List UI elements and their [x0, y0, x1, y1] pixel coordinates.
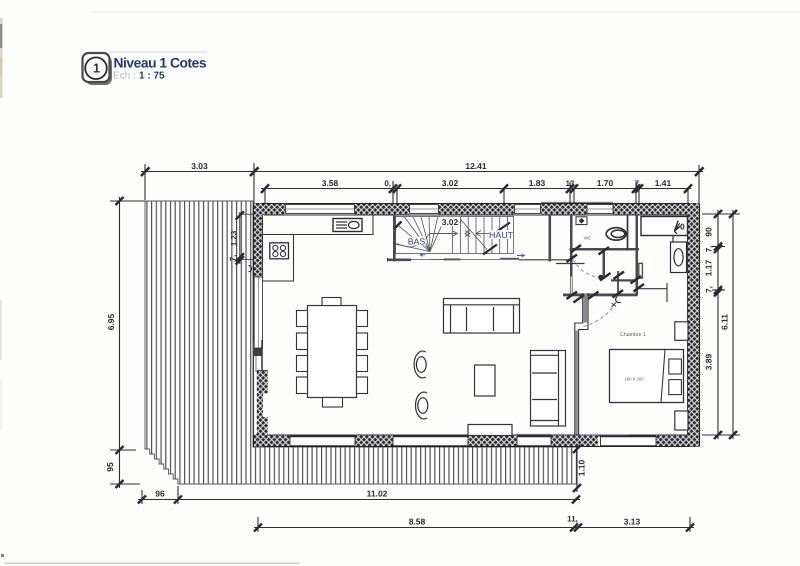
svg-text:6.11: 6.11: [720, 314, 730, 330]
svg-text:96: 96: [155, 489, 165, 499]
svg-text:1: 1: [93, 61, 100, 76]
svg-text:12.41: 12.41: [465, 161, 487, 171]
svg-text:HAUT: HAUT: [489, 230, 514, 240]
svg-text:13,: 13,: [565, 179, 576, 188]
svg-text:7,: 7,: [705, 246, 714, 253]
svg-text:1.23: 1.23: [230, 230, 239, 246]
svg-text:8.58: 8.58: [409, 517, 426, 527]
svg-text:3.02: 3.02: [442, 178, 459, 188]
svg-text:7,: 7,: [229, 255, 238, 262]
svg-text:1.41: 1.41: [655, 178, 672, 188]
svg-text:Chambre 1: Chambre 1: [620, 332, 646, 338]
svg-text:160 X 200: 160 X 200: [624, 377, 644, 382]
svg-text:0,: 0,: [384, 179, 391, 188]
svg-text:11.02: 11.02: [367, 489, 388, 499]
svg-text:7,: 7,: [705, 286, 714, 293]
svg-text:1.10: 1.10: [577, 459, 587, 476]
svg-text:1.70: 1.70: [597, 178, 614, 188]
svg-text:1.83: 1.83: [529, 178, 546, 188]
svg-text:3.02: 3.02: [442, 217, 459, 227]
svg-text:11,: 11,: [567, 515, 578, 524]
svg-text:3.13: 3.13: [624, 517, 641, 527]
svg-text:Niveau 1 Cotes: Niveau 1 Cotes: [114, 56, 207, 71]
svg-text:3.58: 3.58: [322, 178, 339, 188]
svg-text:BAS: BAS: [408, 237, 426, 247]
svg-text:WC: WC: [584, 236, 592, 241]
svg-text:1.17: 1.17: [704, 259, 714, 276]
svg-text:3.03: 3.03: [191, 161, 208, 171]
svg-text:0: 0: [680, 222, 685, 232]
svg-text:6.95: 6.95: [106, 313, 116, 330]
svg-text:90: 90: [704, 227, 714, 237]
svg-text:95: 95: [105, 462, 115, 472]
svg-text:1 : 75: 1 : 75: [139, 71, 165, 82]
svg-text:Ech :: Ech :: [113, 71, 136, 82]
svg-text:7,: 7,: [635, 179, 642, 188]
svg-text:3.89: 3.89: [704, 353, 714, 370]
